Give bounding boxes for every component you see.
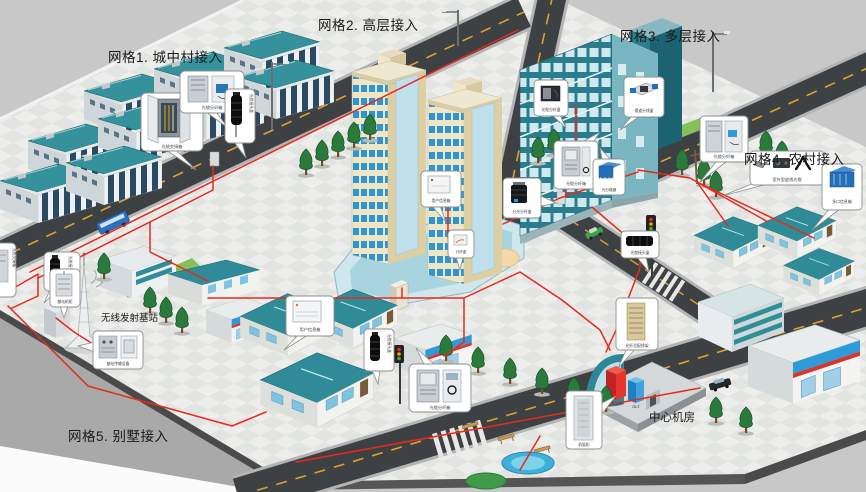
callout-label: 光缆接头盒 [387, 334, 392, 353]
callout-label: 光缆交接箱 [162, 143, 183, 150]
callout-label: 多口信息箱 [832, 199, 852, 204]
callout-label: 光缆分纤箱 [430, 404, 451, 411]
callout-label: 机架柜 [578, 442, 590, 447]
splice-closure-icon [626, 236, 653, 246]
rack-cabinet-icon [574, 396, 593, 440]
splice-closure-icon [370, 332, 380, 361]
info-box-icon [428, 176, 450, 193]
cabinet-icon [0, 250, 8, 282]
callout-label: 光缆分纤箱 [714, 153, 735, 160]
split-box-icon [511, 182, 527, 203]
round-hedge [466, 473, 506, 489]
street-cabinet-small [210, 152, 219, 166]
callout-label: 光缆接头盒 [631, 250, 650, 255]
callout-label: 光缆交接箱 [12, 248, 17, 267]
central-office-label: 中心机房 [649, 410, 695, 424]
callout-edge-cabinet: 光缆交接箱 [0, 243, 17, 297]
callout-label: 分光分纤盒 [513, 209, 532, 214]
diagram-canvas: OMDF OLT [0, 0, 866, 492]
grid1-label: 网格1. 城中村接入 [108, 49, 223, 65]
info-box-icon [293, 301, 321, 322]
base-station-label: 无线发射基站 [101, 312, 159, 324]
callout-label: 用户信息箱 [432, 198, 451, 203]
callout-label: 楼道分线盒 [635, 108, 654, 113]
callout-label: 光缆分纤盒 [542, 107, 561, 112]
terminal-box-icon [454, 235, 467, 245]
callout-label: 基站机柜 [57, 299, 72, 304]
callout-label: 用户信息箱 [300, 326, 321, 333]
callout-label: 光纤总配线架 [625, 343, 648, 348]
callout-label: 分纤盒 [456, 249, 467, 254]
callout-label: 光缆分纤箱 [202, 104, 223, 111]
callout-label: 基站传输设备 [107, 361, 130, 366]
dist-cabinet-icon [417, 370, 461, 402]
dist-box-icon [541, 86, 560, 101]
network-grid-diagram: OMDF OLT [0, 0, 866, 492]
callout-label: 室外型皮线光缆 [772, 176, 802, 183]
odf-rack-icon [627, 303, 645, 340]
grid5-label: 网格5. 别墅接入 [68, 428, 169, 444]
callout-label: 光缆接头盒 [249, 94, 254, 113]
dist-cabinet-icon [562, 147, 590, 176]
grid3-label: 网格3. 多层接入 [620, 28, 721, 44]
olt-label: OLT [632, 404, 640, 409]
callout-label: 光分路器 [602, 187, 617, 192]
callout-label: 光缆分纤箱 [566, 180, 586, 186]
bts-cabinet-icon [56, 271, 72, 296]
grid4-label: 网格4. 农村接入 [744, 151, 845, 167]
grid2-label: 网格2. 高层接入 [318, 17, 419, 33]
